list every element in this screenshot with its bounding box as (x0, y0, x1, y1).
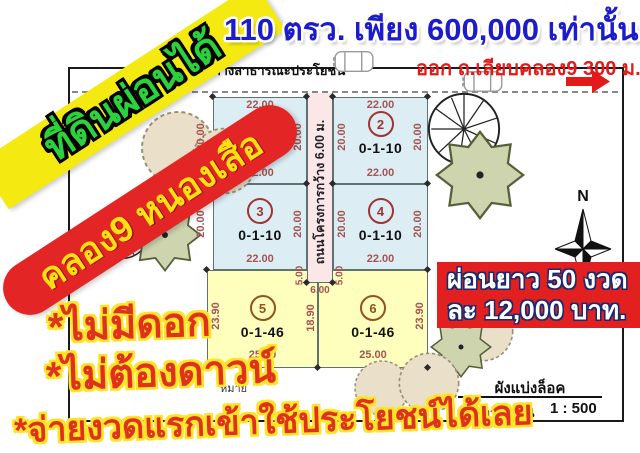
dim-label: 5.00 (295, 261, 306, 291)
spiky-tree-icon (435, 130, 525, 220)
plot-number-badge: 5 (250, 295, 276, 321)
dim-label: 23.90 (210, 294, 222, 338)
plot-size-label: 0-1-46 (351, 324, 394, 340)
payment-line-2: ละ 12,000 บาท. (447, 295, 640, 326)
dim-label: 20.00 (336, 117, 348, 157)
plot-number-badge: 3 (247, 198, 273, 224)
dim-label: 18.90 (305, 296, 317, 340)
headline-price: 110 ตรว. เพียง 600,000 เท่านั้น (224, 4, 640, 54)
dim-label: 20.00 (412, 117, 424, 157)
plot-number-badge: 6 (360, 295, 386, 321)
dim-label: 22.00 (333, 253, 428, 265)
dim-label: 20.00 (292, 204, 304, 244)
dim-label: 20.00 (412, 204, 424, 244)
payment-banner: ผ่อนยาว 50 งวด ละ 12,000 บาท. (437, 262, 640, 328)
plot-size-label: 0-1-10 (359, 140, 402, 156)
arrow-right-icon (566, 70, 610, 93)
scale-value: 1 : 500 (550, 400, 597, 417)
payment-line-1: ผ่อนยาว 50 งวด (447, 264, 640, 295)
dim-label: 22.00 (333, 99, 428, 111)
land-flyer: ทางสาธารณะประโยชน์ ออก ถ.เลียบคลอง9 300 … (0, 0, 640, 453)
plot-size-label: 0-1-10 (359, 227, 402, 243)
plot-number-badge: 2 (368, 111, 394, 137)
dim-label: 23.90 (414, 294, 426, 338)
dim-label: 20.00 (336, 204, 348, 244)
dim-label: 22.00 (333, 167, 428, 179)
project-road-label: ถนนโครงการกว้าง 6.00 ม. (310, 107, 330, 277)
dim-label: 25.00 (318, 349, 428, 361)
dim-label: 5.00 (335, 261, 346, 291)
plot-size-label: 0-1-10 (238, 227, 281, 243)
dim-label: 22.00 (213, 253, 307, 265)
compass-n-label: N (568, 188, 598, 206)
dim-label: 6.00 (307, 285, 333, 296)
plot-number-badge: 4 (368, 198, 394, 224)
